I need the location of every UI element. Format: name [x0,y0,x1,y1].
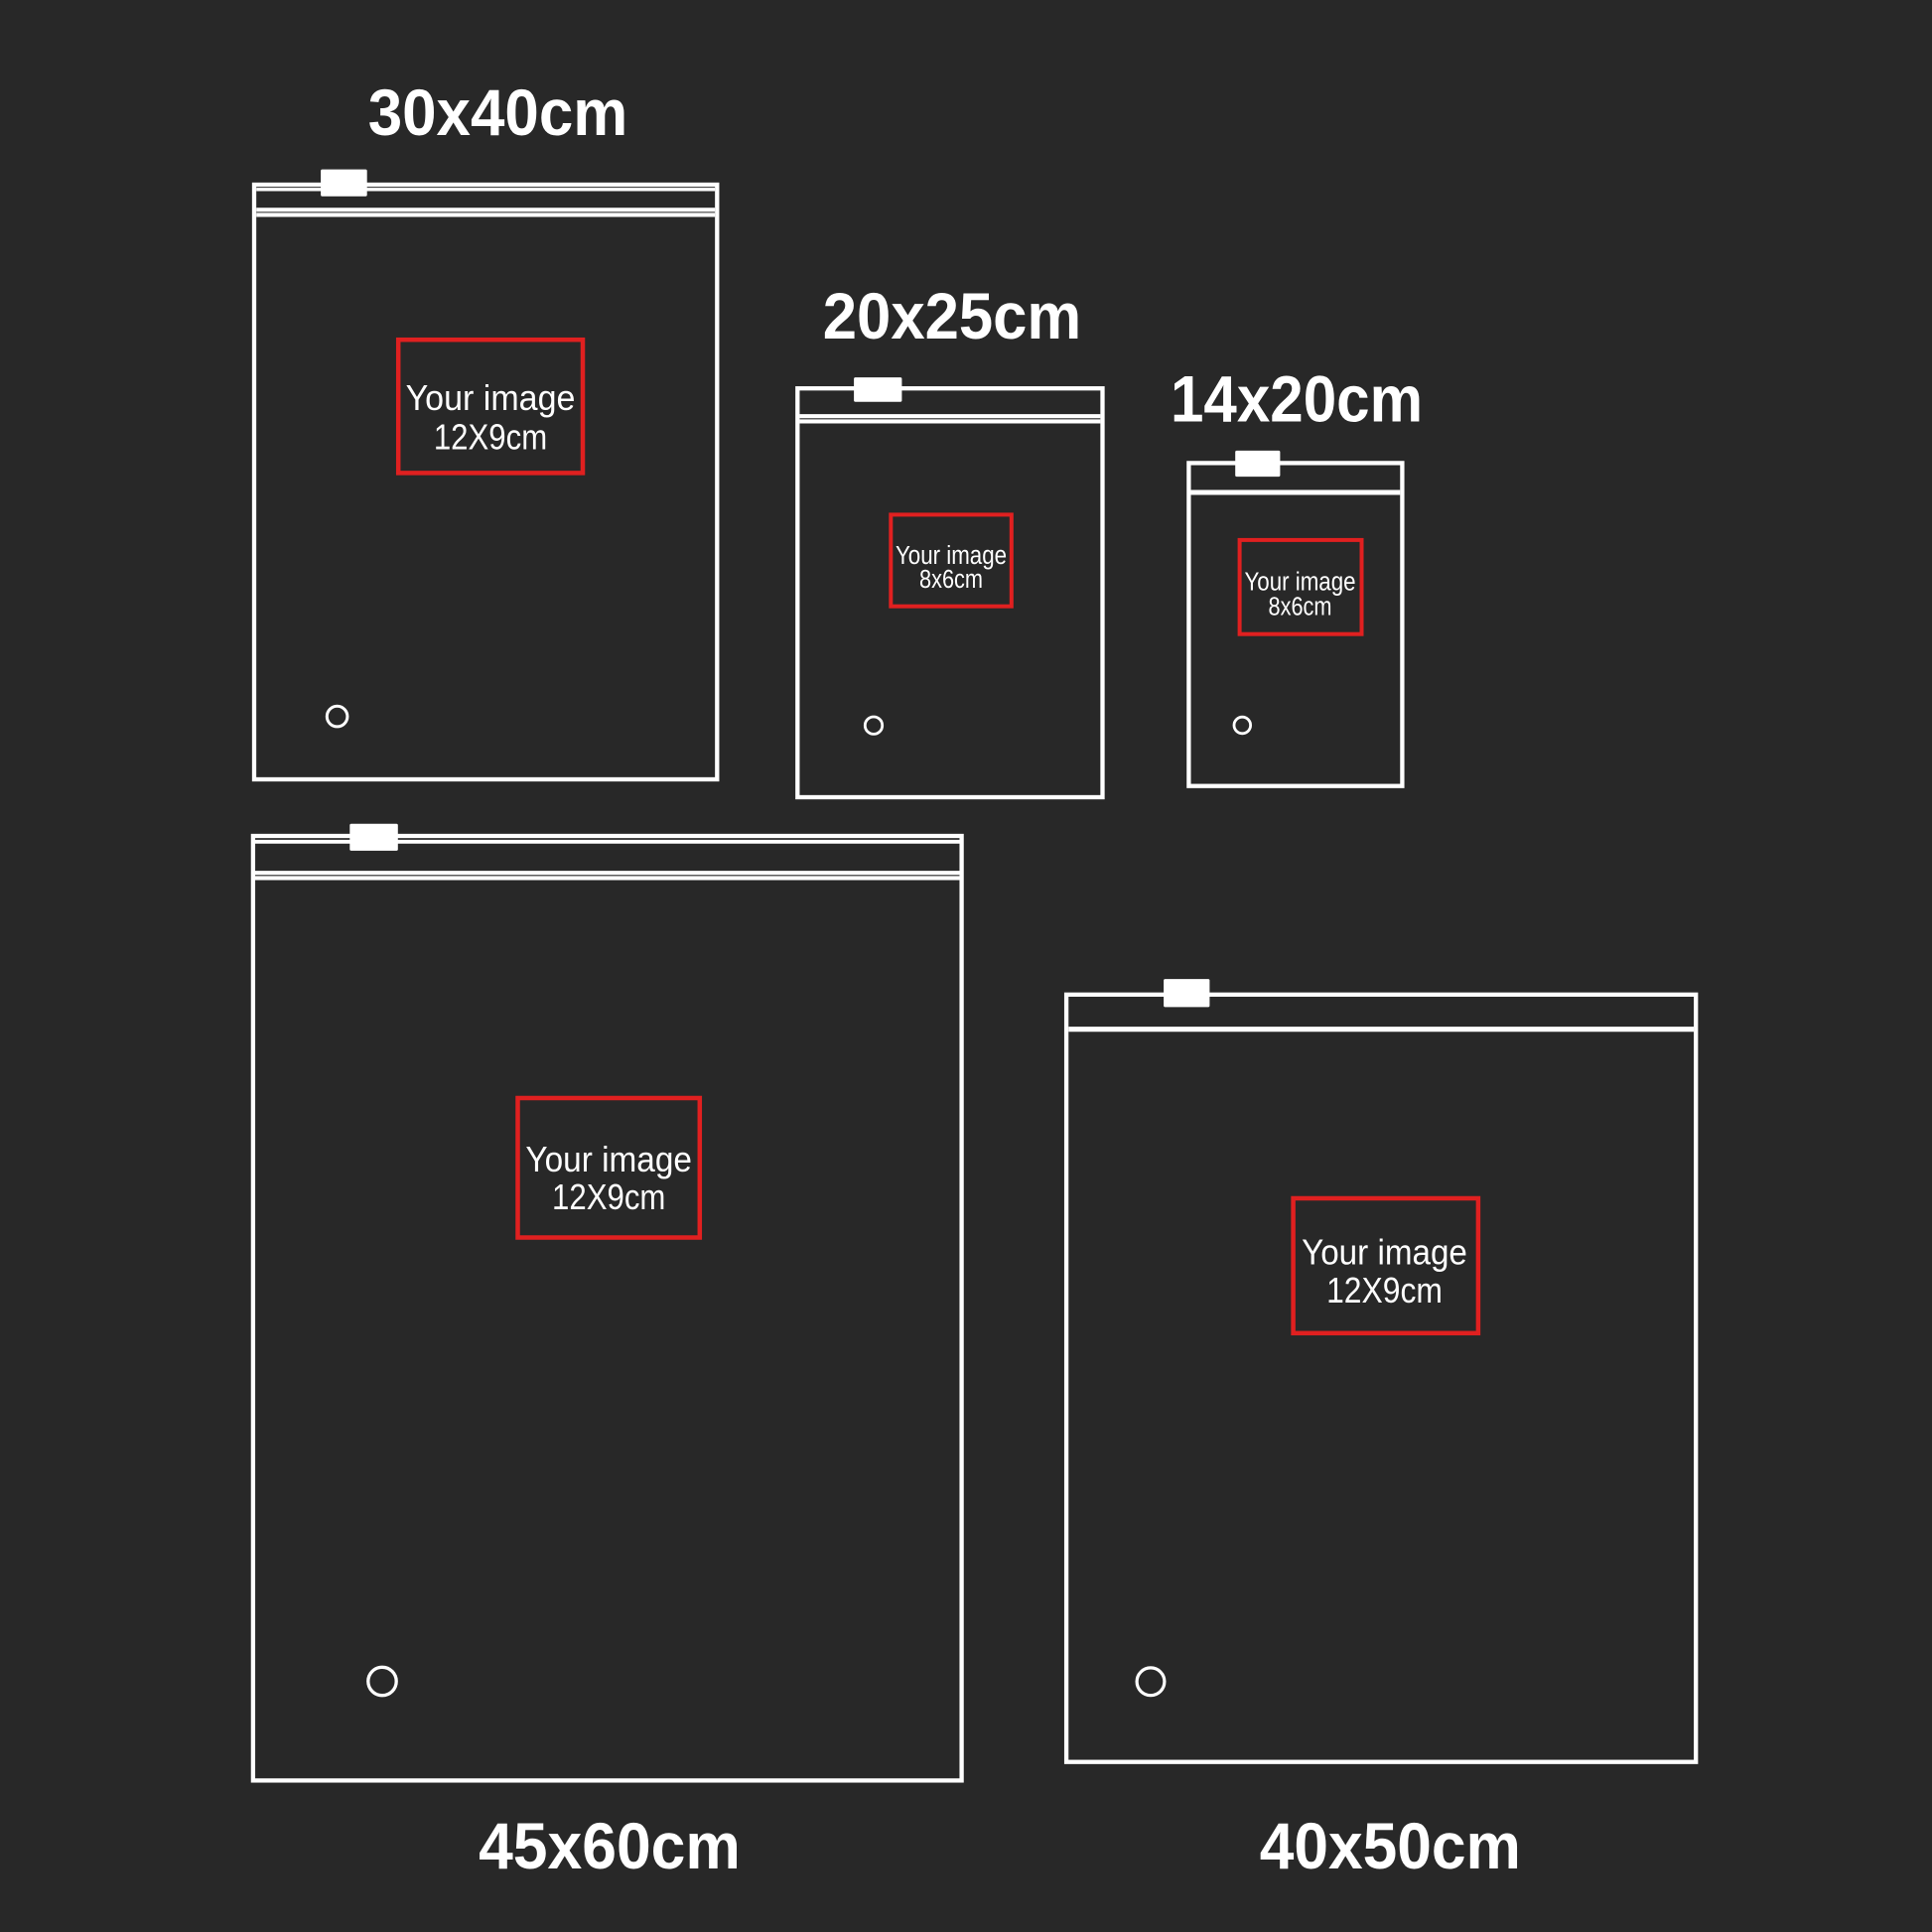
svg-text:12X9cm: 12X9cm [552,1178,665,1218]
svg-text:14x20cm: 14x20cm [1171,363,1423,436]
svg-text:Your image: Your image [525,1141,692,1179]
svg-text:8x6cm: 8x6cm [919,565,983,594]
svg-text:Your image: Your image [406,378,576,418]
svg-text:45x60cm: 45x60cm [479,1809,741,1882]
svg-text:8x6cm: 8x6cm [1268,593,1331,621]
svg-text:40x50cm: 40x50cm [1260,1809,1521,1882]
svg-text:20x25cm: 20x25cm [823,279,1081,352]
svg-text:Your image: Your image [1302,1233,1467,1272]
svg-text:12X9cm: 12X9cm [434,419,547,459]
svg-text:30x40cm: 30x40cm [368,75,628,149]
svg-text:12X9cm: 12X9cm [1326,1271,1443,1311]
